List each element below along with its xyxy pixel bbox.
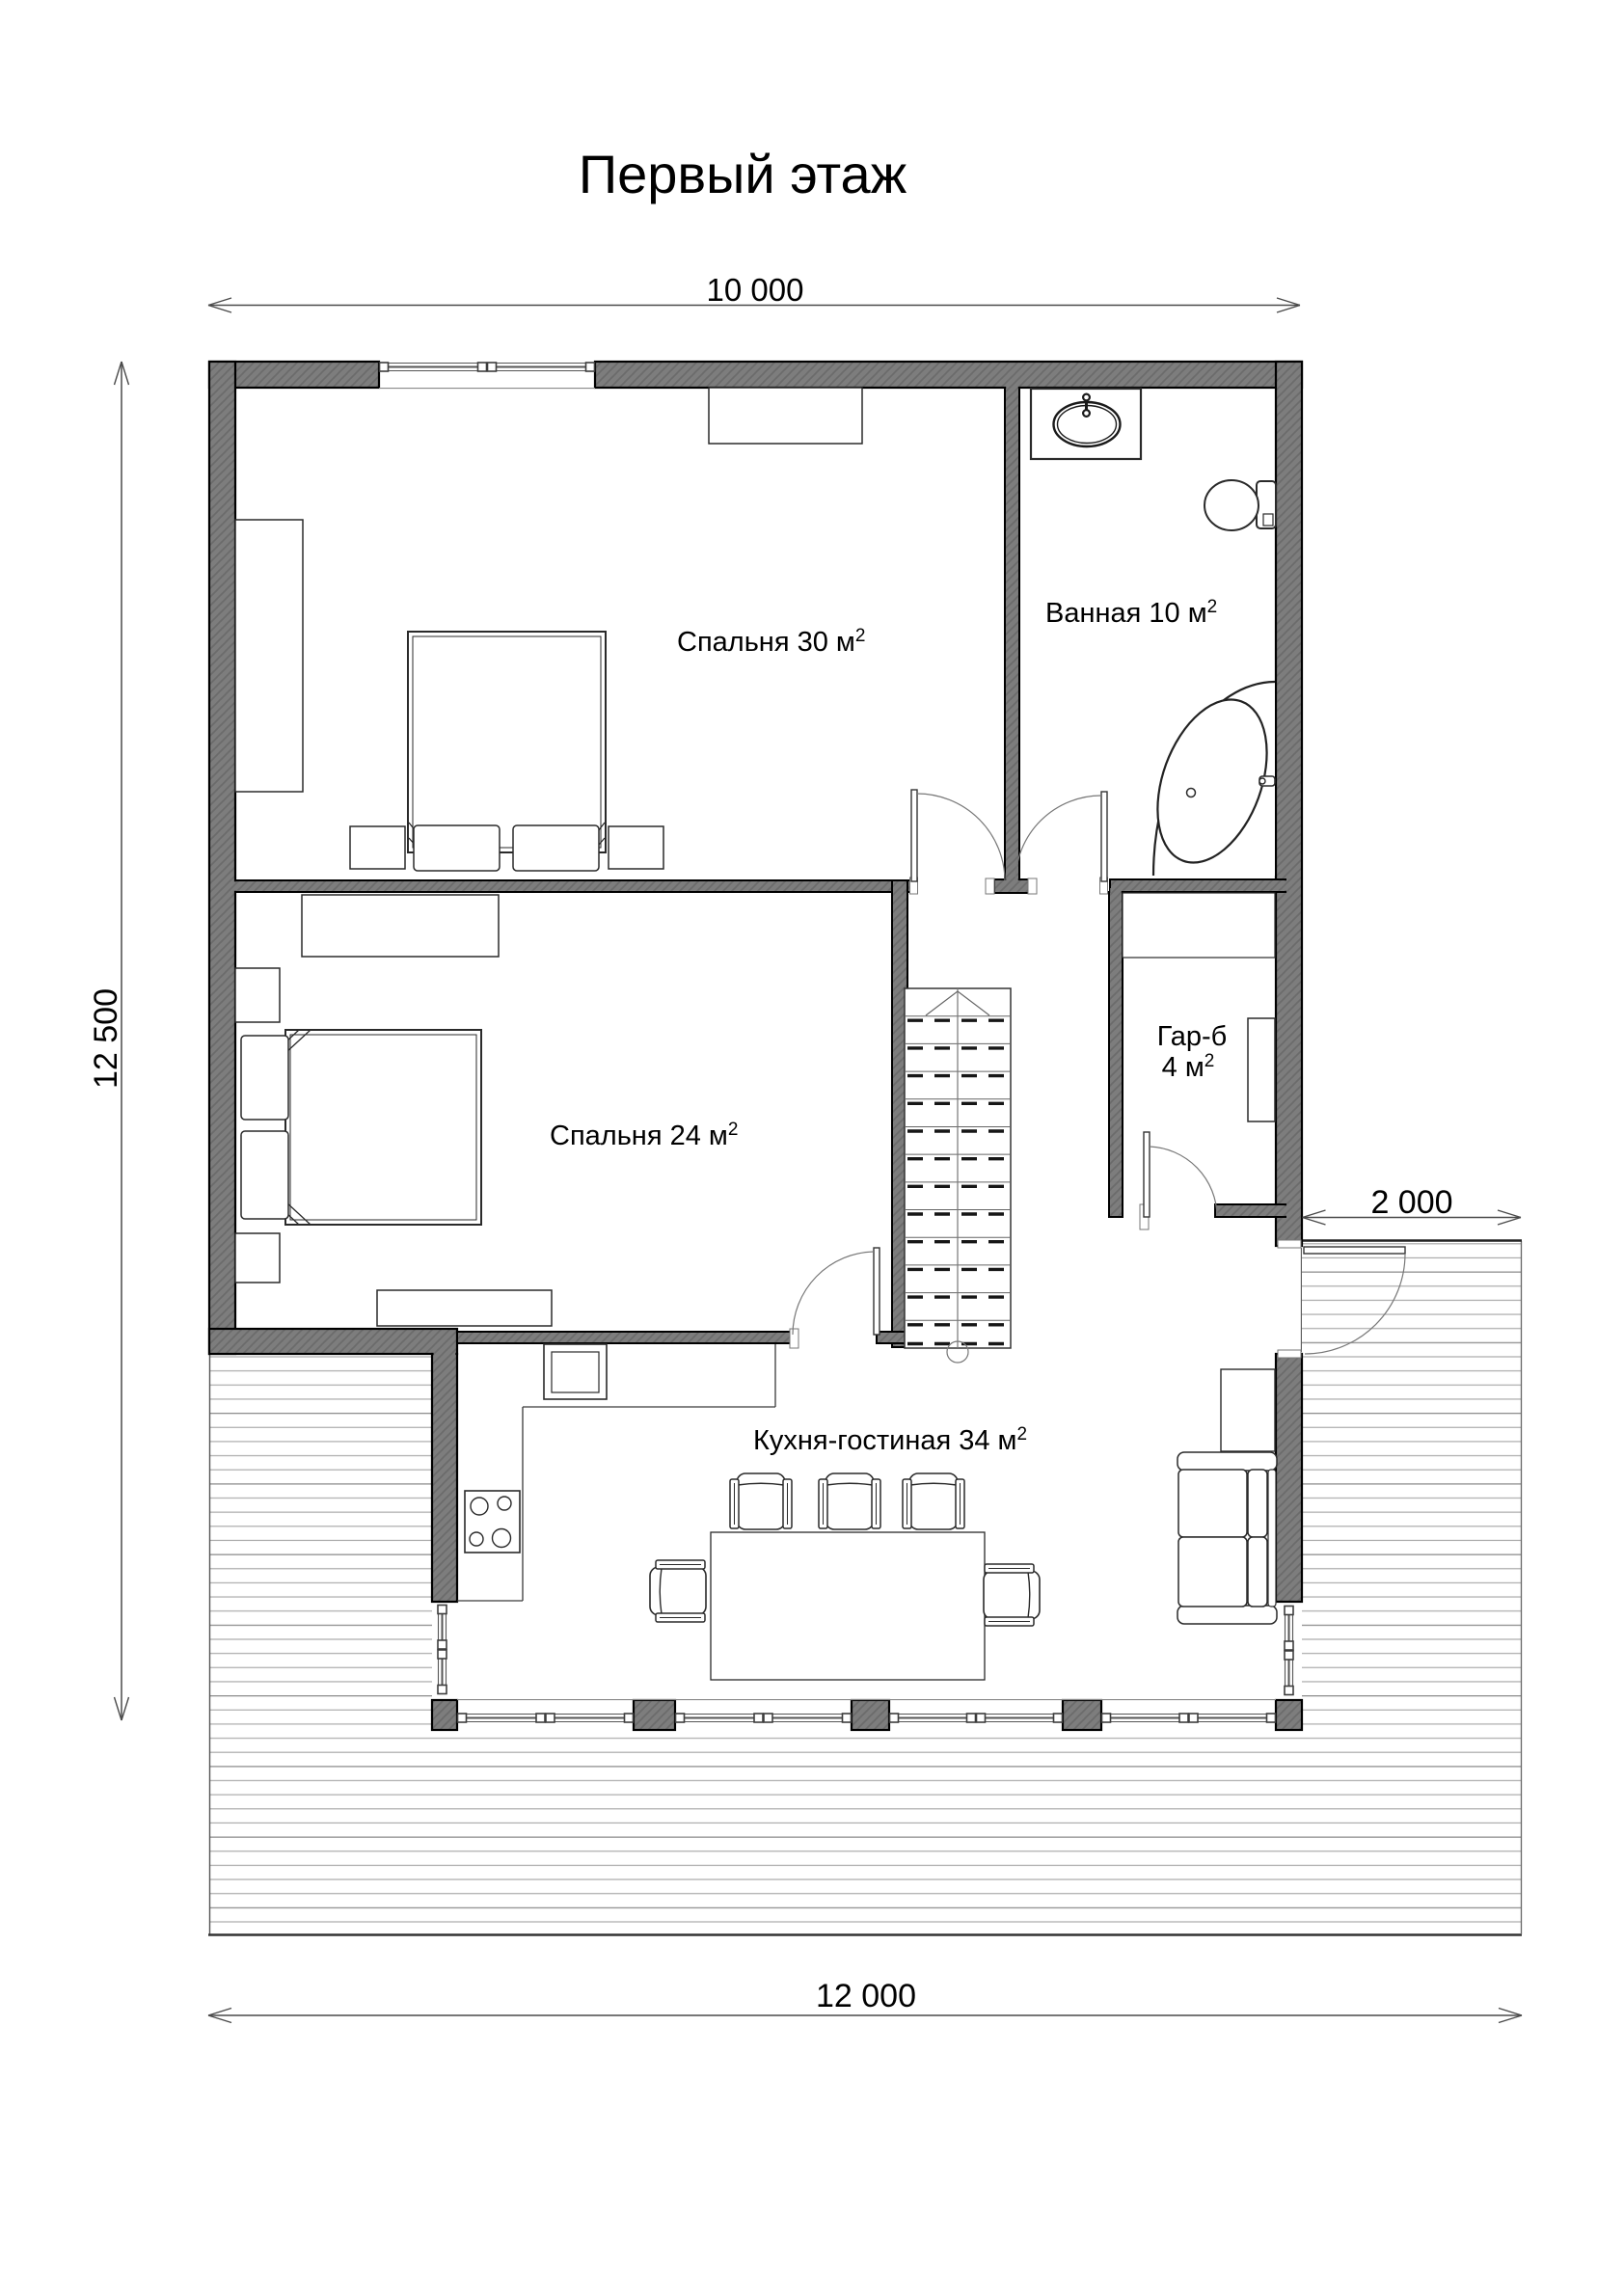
svg-text:12 500: 12 500 (88, 988, 124, 1089)
svg-text:Кухня-гостиная 34 м2: Кухня-гостиная 34 м2 (753, 1424, 1027, 1456)
svg-text:2 000: 2 000 (1370, 1184, 1452, 1221)
svg-text:Спальня 30 м2: Спальня 30 м2 (677, 626, 865, 658)
svg-text:Первый этаж: Первый этаж (579, 144, 907, 204)
svg-text:Гар-б: Гар-б (1157, 1021, 1228, 1052)
svg-text:12 000: 12 000 (816, 1978, 916, 2014)
svg-text:Спальня 24 м2: Спальня 24 м2 (550, 1120, 738, 1151)
svg-text:10 000: 10 000 (707, 272, 804, 308)
svg-text:Ванная 10 м2: Ванная 10 м2 (1045, 597, 1217, 629)
